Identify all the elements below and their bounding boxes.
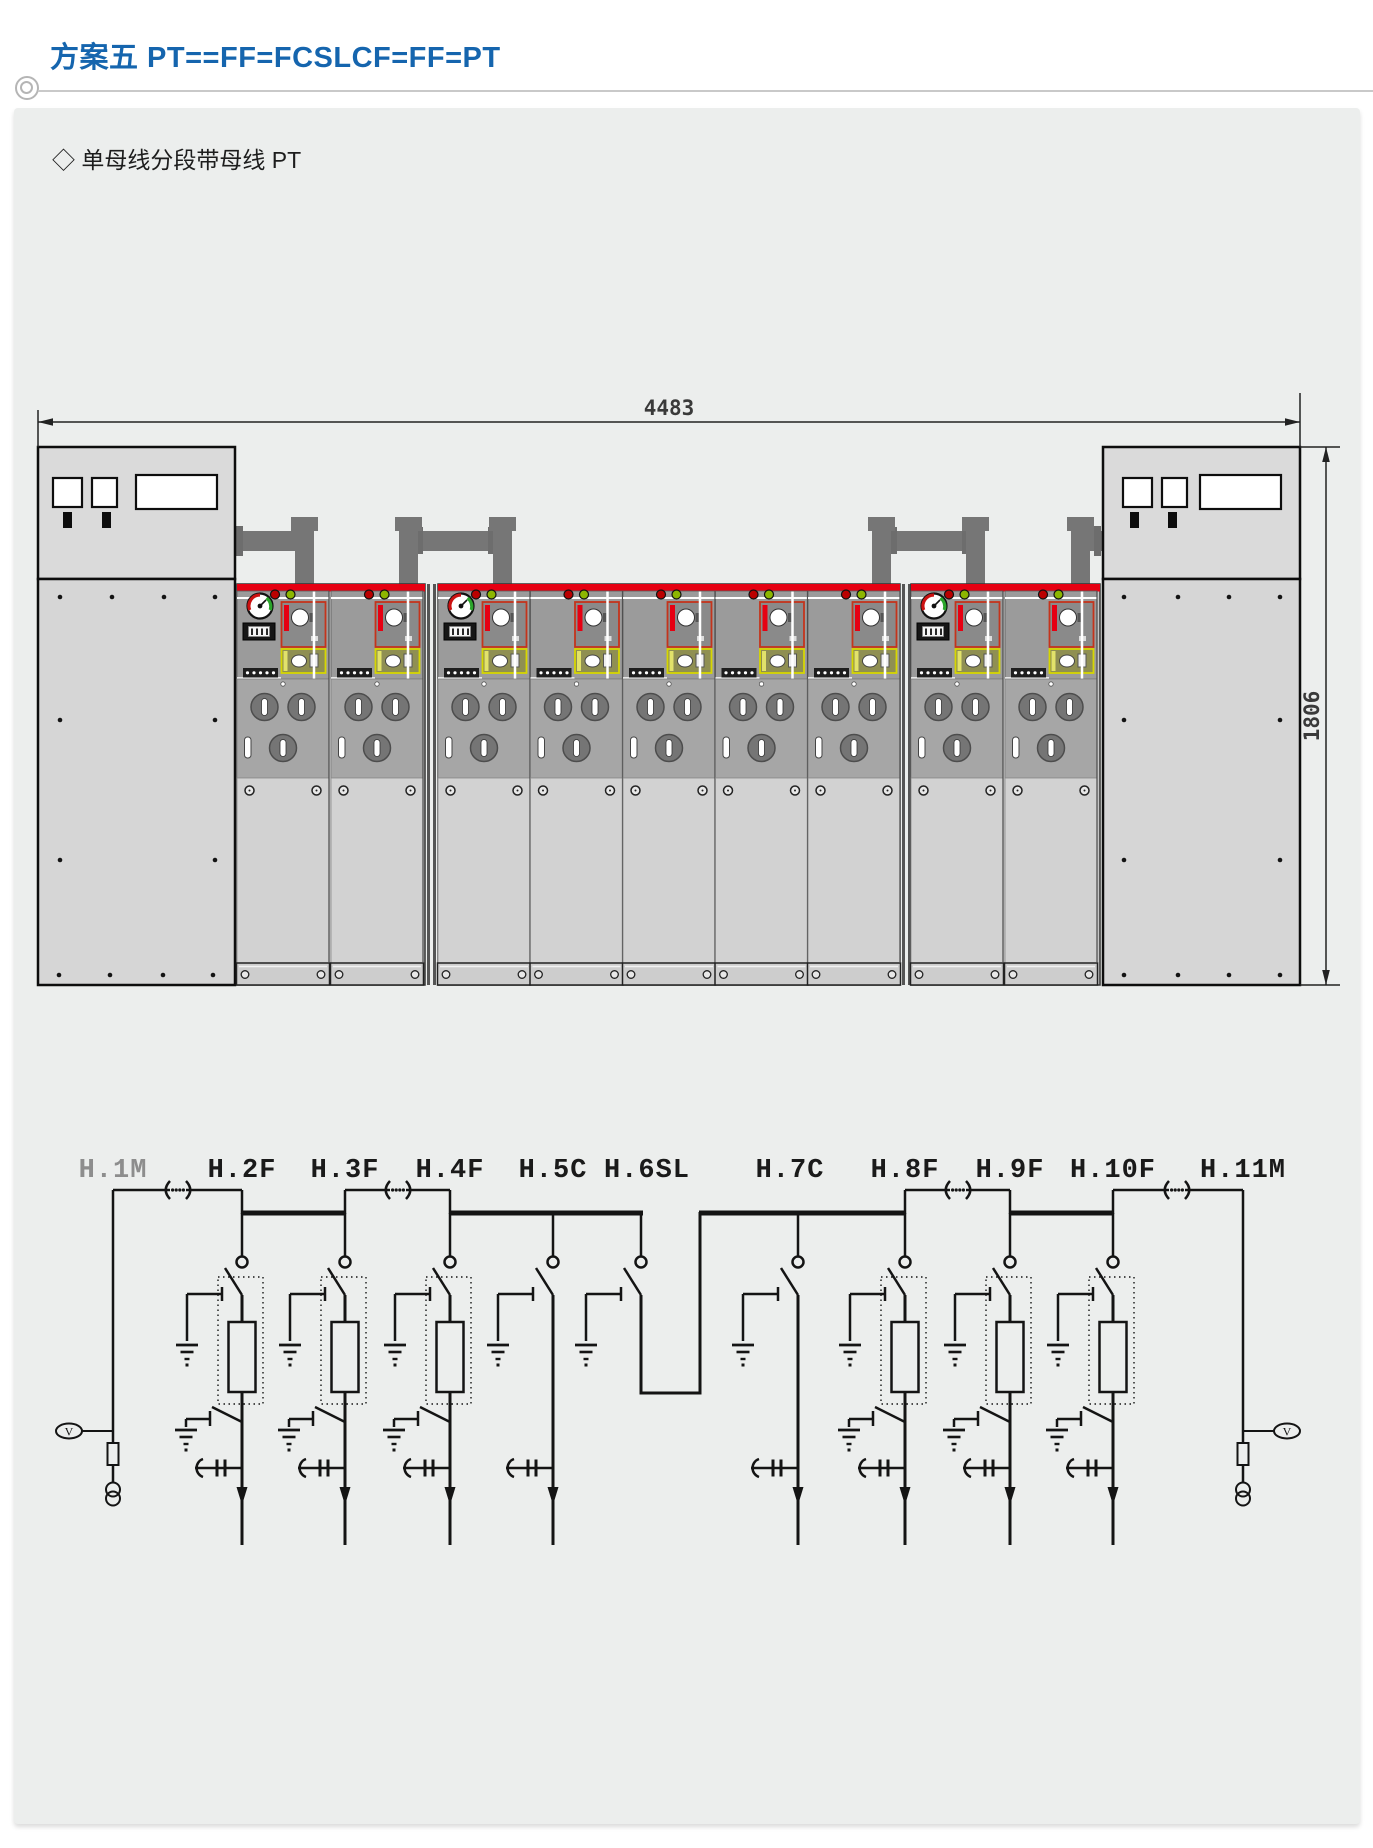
- group-separator: [433, 584, 436, 985]
- busbars: [113, 1190, 1243, 1214]
- meter-window: [1123, 478, 1152, 507]
- bay-h8f-fuse-feeder: [838, 1213, 926, 1545]
- nameplate-window: [1200, 475, 1281, 509]
- meter-window: [92, 478, 117, 507]
- meter-window: [53, 478, 82, 507]
- width-dimension: 4483: [644, 396, 695, 420]
- switchgear-panel: [237, 590, 330, 985]
- bay-label-h5c: H.5C: [519, 1156, 588, 1186]
- switchgear-panel: [623, 590, 716, 985]
- switchgear-panel: [530, 590, 623, 985]
- switchgear-panel: [715, 590, 808, 985]
- voltmeter-label: V: [1283, 1425, 1292, 1439]
- switchgear-panel: [1005, 590, 1098, 985]
- nameplate-window: [136, 475, 217, 509]
- single-line-diagram: H.1M H.2F H.3F H.4F H.5C H.6SL H.7C H.8F…: [56, 1156, 1300, 1545]
- switchgear-panel: [808, 590, 901, 985]
- switchgear-group-3: [911, 584, 1101, 985]
- bay-h7c-cable-switch: [732, 1213, 804, 1545]
- bay-h1m-pt-metering: [56, 1190, 120, 1506]
- bay-h9f-fuse-feeder: [943, 1213, 1031, 1545]
- bay-label-h3f: H.3F: [311, 1156, 380, 1186]
- switchgear-panel: [331, 590, 424, 985]
- bay-label-h1m: H.1M: [79, 1156, 148, 1186]
- bay-h11m-pt-metering: [1236, 1190, 1300, 1506]
- bay-label-h4f: H.4F: [416, 1156, 485, 1186]
- group-separator: [902, 584, 905, 985]
- meter-window: [1162, 478, 1187, 507]
- elevation-drawing: 4483 1806: [38, 393, 1340, 985]
- roof-bus-ducts: [235, 517, 1103, 584]
- group-separator: [427, 584, 430, 985]
- bay-h10f-fuse-feeder: [1046, 1213, 1134, 1545]
- left-pt-cabinet: [38, 447, 235, 985]
- bay-h5c-cable-switch: [487, 1213, 559, 1545]
- switchgear-group-1: [237, 584, 426, 985]
- bay-h3f-fuse-feeder: [278, 1213, 366, 1545]
- bay-label-h8f: H.8F: [871, 1156, 940, 1186]
- switchgear-group-2: [438, 584, 901, 985]
- technical-drawing: 4483 1806 H.1M H.2F H.3F H.4F H.5C H.6SL…: [0, 0, 1373, 1848]
- switchgear-panel: [438, 590, 531, 985]
- bay-label-h10f: H.10F: [1070, 1156, 1156, 1186]
- bay-h2f-fuse-feeder: [175, 1213, 263, 1545]
- right-pt-cabinet: [1103, 447, 1300, 985]
- bay-h4f-fuse-feeder: [383, 1213, 471, 1545]
- bay-label-h11m: H.11M: [1200, 1156, 1286, 1186]
- bay-label-h2f: H.2F: [208, 1156, 277, 1186]
- switchgear-panel: [911, 590, 1004, 985]
- bay-label-h6sl: H.6SL: [604, 1156, 690, 1186]
- height-dimension: 1806: [1300, 691, 1324, 742]
- voltmeter-label: V: [65, 1425, 74, 1439]
- bay-h6sl-section-link: [575, 1212, 700, 1395]
- bay-label-h9f: H.9F: [976, 1156, 1045, 1186]
- bay-label-h7c: H.7C: [756, 1156, 825, 1186]
- catalog-page: 方案五 PT==FF=FCSLCF=FF=PT ◇ 单母线分段带母线 PT: [0, 0, 1373, 1848]
